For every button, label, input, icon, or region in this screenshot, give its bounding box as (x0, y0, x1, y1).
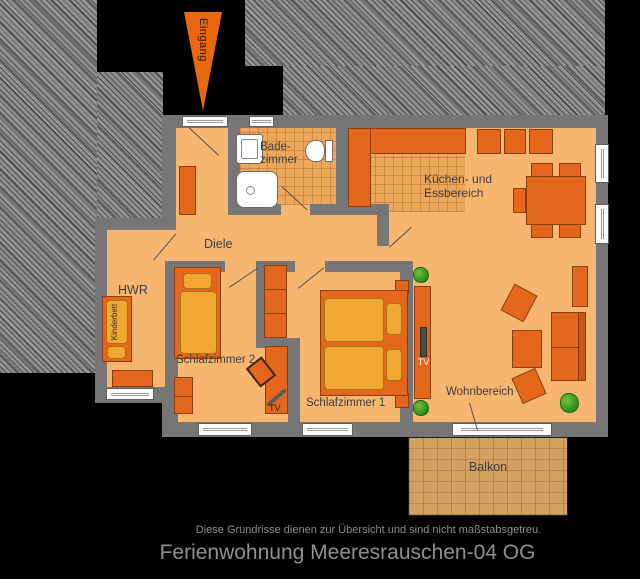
floorplan-canvas: Eingang TV (0, 0, 640, 579)
balcony-label: Balkon (409, 460, 567, 474)
entrance-label: Eingang (197, 18, 209, 62)
bedroom2-cabinet (174, 377, 193, 414)
bedroom1-pillow-2 (386, 349, 402, 381)
hwr-window (106, 388, 154, 400)
bathroom-label-line2: zimmer (260, 154, 298, 166)
kitchen-label-line2: Essbereich (424, 186, 483, 200)
bedroom1-mattress-2 (324, 346, 384, 390)
hwr-cabinet (112, 370, 153, 387)
background-hatch-top-right-lower (283, 66, 605, 116)
plant-icon (560, 393, 579, 413)
shower-drain (246, 186, 255, 195)
dining-chair-top-1 (531, 163, 553, 177)
bedroom1-mattress-1 (324, 298, 384, 342)
kinderbett-pillow (107, 346, 126, 359)
window-lines (307, 428, 348, 431)
bathroom-right-wall (336, 128, 348, 215)
balcony: Balkon (408, 437, 568, 516)
kinderbett-label: Kinderbett (110, 299, 122, 345)
bedroom1-label: Schlafzimmer 1 (306, 397, 385, 409)
right-wall-window-2 (595, 204, 609, 244)
window-lines (111, 393, 150, 396)
hwr-label: HWR (118, 283, 148, 297)
background-hatch-left-upper (0, 0, 97, 373)
kitchen-unit-2 (504, 129, 526, 154)
sofa (551, 312, 586, 381)
window-lines (252, 120, 271, 123)
toilet (305, 138, 333, 164)
plant-icon (413, 267, 429, 283)
bedroom1-pillow-1 (386, 303, 402, 335)
tv-label-bedroom2: TV (269, 403, 281, 413)
sofa-backrest (578, 313, 585, 380)
entrance-door (182, 116, 228, 127)
bedroom2-pillow (183, 273, 212, 289)
tv-lowboard-living: TV (414, 286, 431, 399)
window-lines (203, 428, 247, 431)
dining-table (526, 176, 586, 225)
dining-chair-left (513, 188, 526, 213)
bedroom-divider-lower-wall (288, 341, 300, 422)
bathroom-window (249, 116, 274, 127)
tv-label-living: TV (415, 357, 432, 367)
wardrobe-divider (265, 289, 286, 290)
bathroom-label-line1: Bade- (260, 141, 291, 153)
bedroom1-window (302, 423, 353, 436)
kitchen-label-line1: Küchen- und (424, 172, 492, 186)
toilet-bowl (305, 140, 325, 162)
tv-screen-living (420, 327, 427, 357)
bedroom2-label: Schlafzimmer 2 (176, 354, 255, 366)
entrance-arrow-icon: Eingang (184, 12, 222, 111)
door-glass-lines (461, 428, 543, 431)
cabinet-divider (175, 396, 192, 397)
door-glass-lines (187, 120, 224, 123)
balcony-door (452, 423, 552, 436)
kitchen-counter-side (348, 128, 371, 207)
bathroom-label: Bade- zimmer (260, 141, 298, 167)
sideboard (572, 266, 588, 307)
bedroom1-wardrobe (264, 265, 287, 338)
bedroom2-window (198, 423, 252, 436)
dining-chair-top-2 (559, 163, 581, 177)
bedroom2-mattress (180, 291, 217, 354)
window-lines (601, 209, 604, 239)
diele-living-divider-wall (377, 204, 389, 246)
hall-wardrobe (179, 166, 196, 215)
kitchen-unit-3 (529, 129, 553, 154)
dining-chair-bottom-1 (531, 224, 553, 238)
disclaimer-text: Diese Grundrisse dienen zur Übersicht un… (97, 524, 640, 536)
coffee-table (512, 330, 542, 368)
livingroom-label: Wohnbereich (446, 386, 514, 398)
kitchen-unit-1 (477, 129, 501, 154)
wardrobe-divider (265, 313, 286, 314)
background-hatch-left-inner (97, 72, 163, 218)
window-lines (601, 149, 604, 179)
sofa-cushion-divider (552, 347, 579, 348)
toilet-tank (325, 140, 333, 162)
bathroom-sink (236, 134, 263, 164)
dining-chair-bottom-2 (559, 224, 581, 238)
kitchen-label: Küchen- und Essbereich (424, 172, 492, 200)
background-hatch-top-right (245, 0, 605, 66)
sink-basin (241, 139, 258, 159)
plant-icon (413, 400, 429, 416)
page-title: Ferienwohnung Meeresrauschen-04 OG (55, 541, 640, 565)
hall-label: Diele (204, 237, 233, 251)
right-wall-window-1 (595, 144, 609, 183)
shower (236, 171, 278, 208)
